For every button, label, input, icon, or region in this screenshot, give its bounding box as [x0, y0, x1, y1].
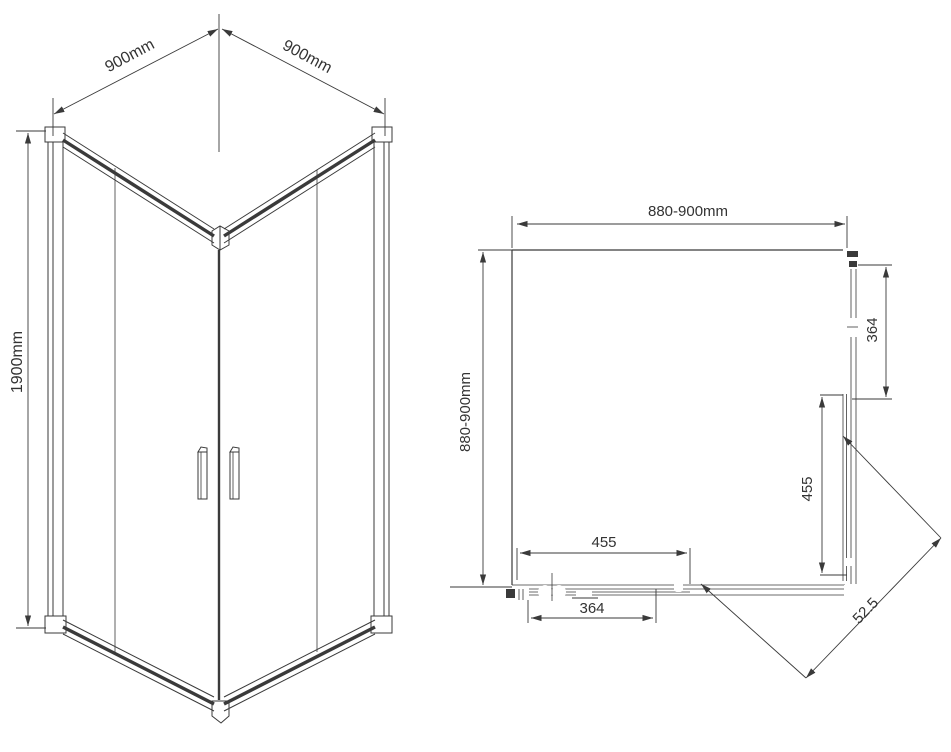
plan-right-panel-clip [847, 318, 858, 337]
plan-wall-bracket-bottom-left [504, 586, 529, 601]
plan-view: 880-900mm 880-900mm 364 455 455 364 52.5 [450, 203, 941, 678]
iso-dimension-lines [28, 29, 384, 626]
plan-door-rollers [538, 573, 566, 601]
iso-left-wall-profile [45, 127, 66, 633]
shower-enclosure-technical-drawing: 900mm 900mm 1900mm [0, 0, 951, 752]
plan-extension-lines [450, 216, 892, 623]
plan-right-door-handle [829, 558, 852, 566]
plan-wall-outline [512, 250, 845, 585]
plan-bottom-door-label: 455 [591, 534, 616, 551]
iso-right-door-handle [230, 447, 239, 499]
plan-bottom-fixed-panel-label: 364 [579, 600, 604, 617]
plan-dimension-lines [483, 224, 886, 618]
iso-corner-post [212, 226, 229, 723]
plan-right-fixed-panel-label: 364 [864, 317, 881, 342]
plan-door-bumper [674, 569, 683, 592]
iso-left-door-handle [198, 447, 207, 499]
plan-width-top-label: 880-900mm [648, 203, 728, 220]
iso-width-right-label: 900mm [280, 37, 335, 77]
plan-depth-left-label: 880-900mm [457, 372, 474, 452]
plan-bottom-door-handle [572, 590, 598, 598]
plan-corner-joint-bottom-right [844, 585, 862, 601]
iso-width-left-label: 900mm [102, 36, 157, 76]
iso-view: 900mm 900mm 1900mm [9, 14, 392, 723]
plan-right-glass-panels [843, 268, 856, 584]
plan-diagonal-dimension [701, 436, 941, 678]
iso-glass-door-edges [115, 168, 317, 652]
iso-right-wall-profile [371, 127, 392, 633]
plan-wall-bracket-top-right [844, 248, 862, 269]
iso-height-label: 1900mm [9, 331, 26, 393]
iso-extension-lines [16, 14, 385, 628]
plan-right-door-label: 455 [799, 476, 816, 501]
